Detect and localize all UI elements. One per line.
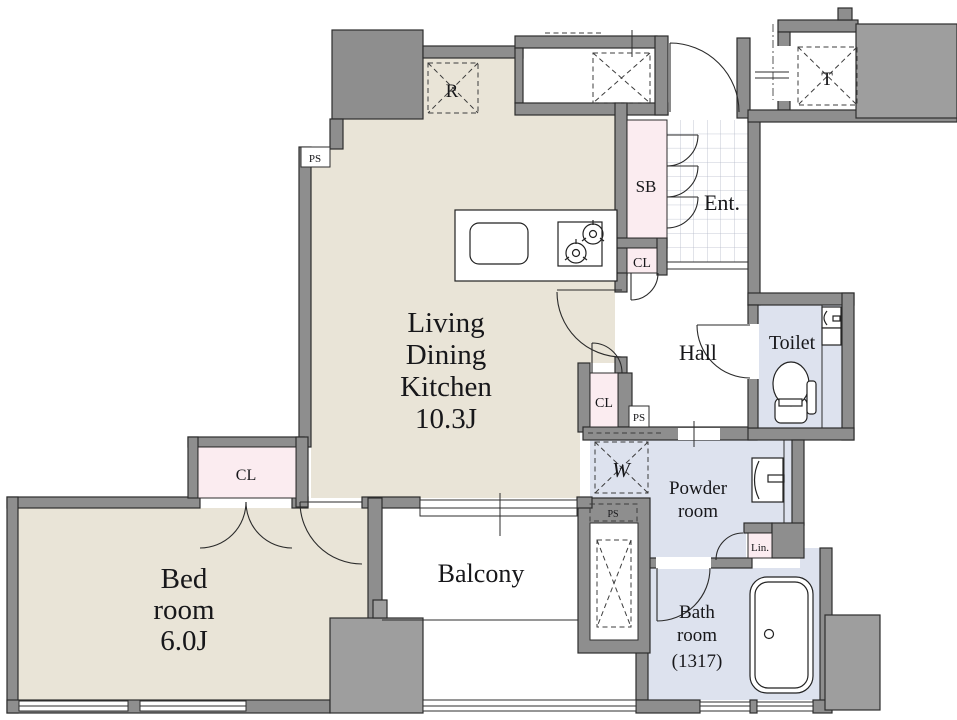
common-block-notch [373, 600, 387, 618]
entrance-door [670, 43, 739, 112]
common-block-top-right [856, 24, 957, 118]
toilet-label: Toilet [769, 332, 816, 354]
room-bedroom-label: Bed room 6.0J [153, 563, 215, 657]
room-bath-label: Bath room (1317) [672, 602, 723, 672]
common-block-bottom-right [825, 615, 880, 710]
shoe-box-label: SB [636, 177, 657, 196]
refrigerator-label: R [446, 81, 459, 102]
kitchen-counter [455, 210, 617, 281]
bath-line-2: room [677, 625, 717, 646]
ldk-line-1: Living [407, 307, 484, 339]
floor-plan-page: Living Dining Kitchen 10.3J Bed room 6.0… [0, 0, 957, 720]
powder-line-2: room [678, 501, 718, 522]
ldk-area: 10.3J [415, 403, 477, 435]
bathtub [750, 577, 813, 693]
closet-bedroom-label: CL [236, 467, 256, 484]
trunk-label: T [821, 69, 833, 90]
hall-label: Hall [679, 340, 717, 365]
ps-label-2: PS [633, 412, 645, 424]
bedroom-area: 6.0J [160, 625, 208, 657]
common-block-bottom-middle [330, 618, 423, 713]
bath-line-1: Bath [679, 602, 715, 623]
linen-label: Lin. [751, 542, 769, 554]
powder-line-1: Powder [669, 478, 728, 499]
closet-hall-label: CL [595, 396, 613, 411]
toilet-shelf [822, 307, 841, 328]
entrance-label: Ent. [704, 190, 740, 215]
ps-label-1: PS [309, 153, 321, 165]
toilet-arm [807, 381, 816, 414]
washer-label: W [612, 458, 632, 482]
ldk-line-2: Dining [406, 339, 487, 371]
entrance-step [667, 262, 748, 269]
bedroom-line-1: Bed [161, 563, 208, 595]
closet-top-label: CL [633, 256, 651, 271]
floor-plan: Living Dining Kitchen 10.3J Bed room 6.0… [0, 0, 957, 720]
bath-size: (1317) [672, 651, 723, 672]
ps-label-3: PS [607, 509, 618, 520]
ldk-line-3: Kitchen [400, 371, 492, 403]
bedroom-line-2: room [153, 594, 215, 626]
balcony-label: Balcony [438, 559, 525, 588]
